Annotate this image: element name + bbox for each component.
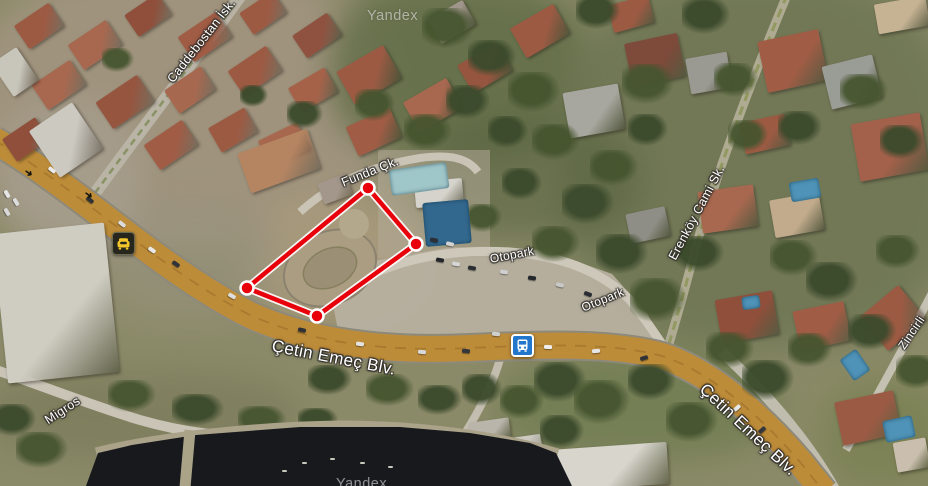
selection-vertex-handle[interactable] [362, 182, 375, 195]
yandex-watermark-top: Yandex [367, 8, 418, 24]
traffic-event-taxi-icon[interactable] [112, 232, 135, 255]
bus-glyph [516, 339, 529, 352]
taxi-car-glyph [115, 235, 132, 252]
selection-polygon[interactable] [247, 188, 416, 316]
selection-vertex-handle[interactable] [311, 310, 324, 323]
selection-vertex-handle[interactable] [241, 282, 254, 295]
selection-polygon-svg[interactable] [0, 0, 928, 486]
yandex-watermark-bottom: Yandex [336, 476, 387, 486]
satellite-map-canvas[interactable]: ➜ ➜ Caddebostan İsk. Funda Çk. Otopark O… [0, 0, 928, 486]
selection-vertex-handle[interactable] [410, 238, 423, 251]
bus-stop-icon[interactable] [511, 334, 534, 357]
